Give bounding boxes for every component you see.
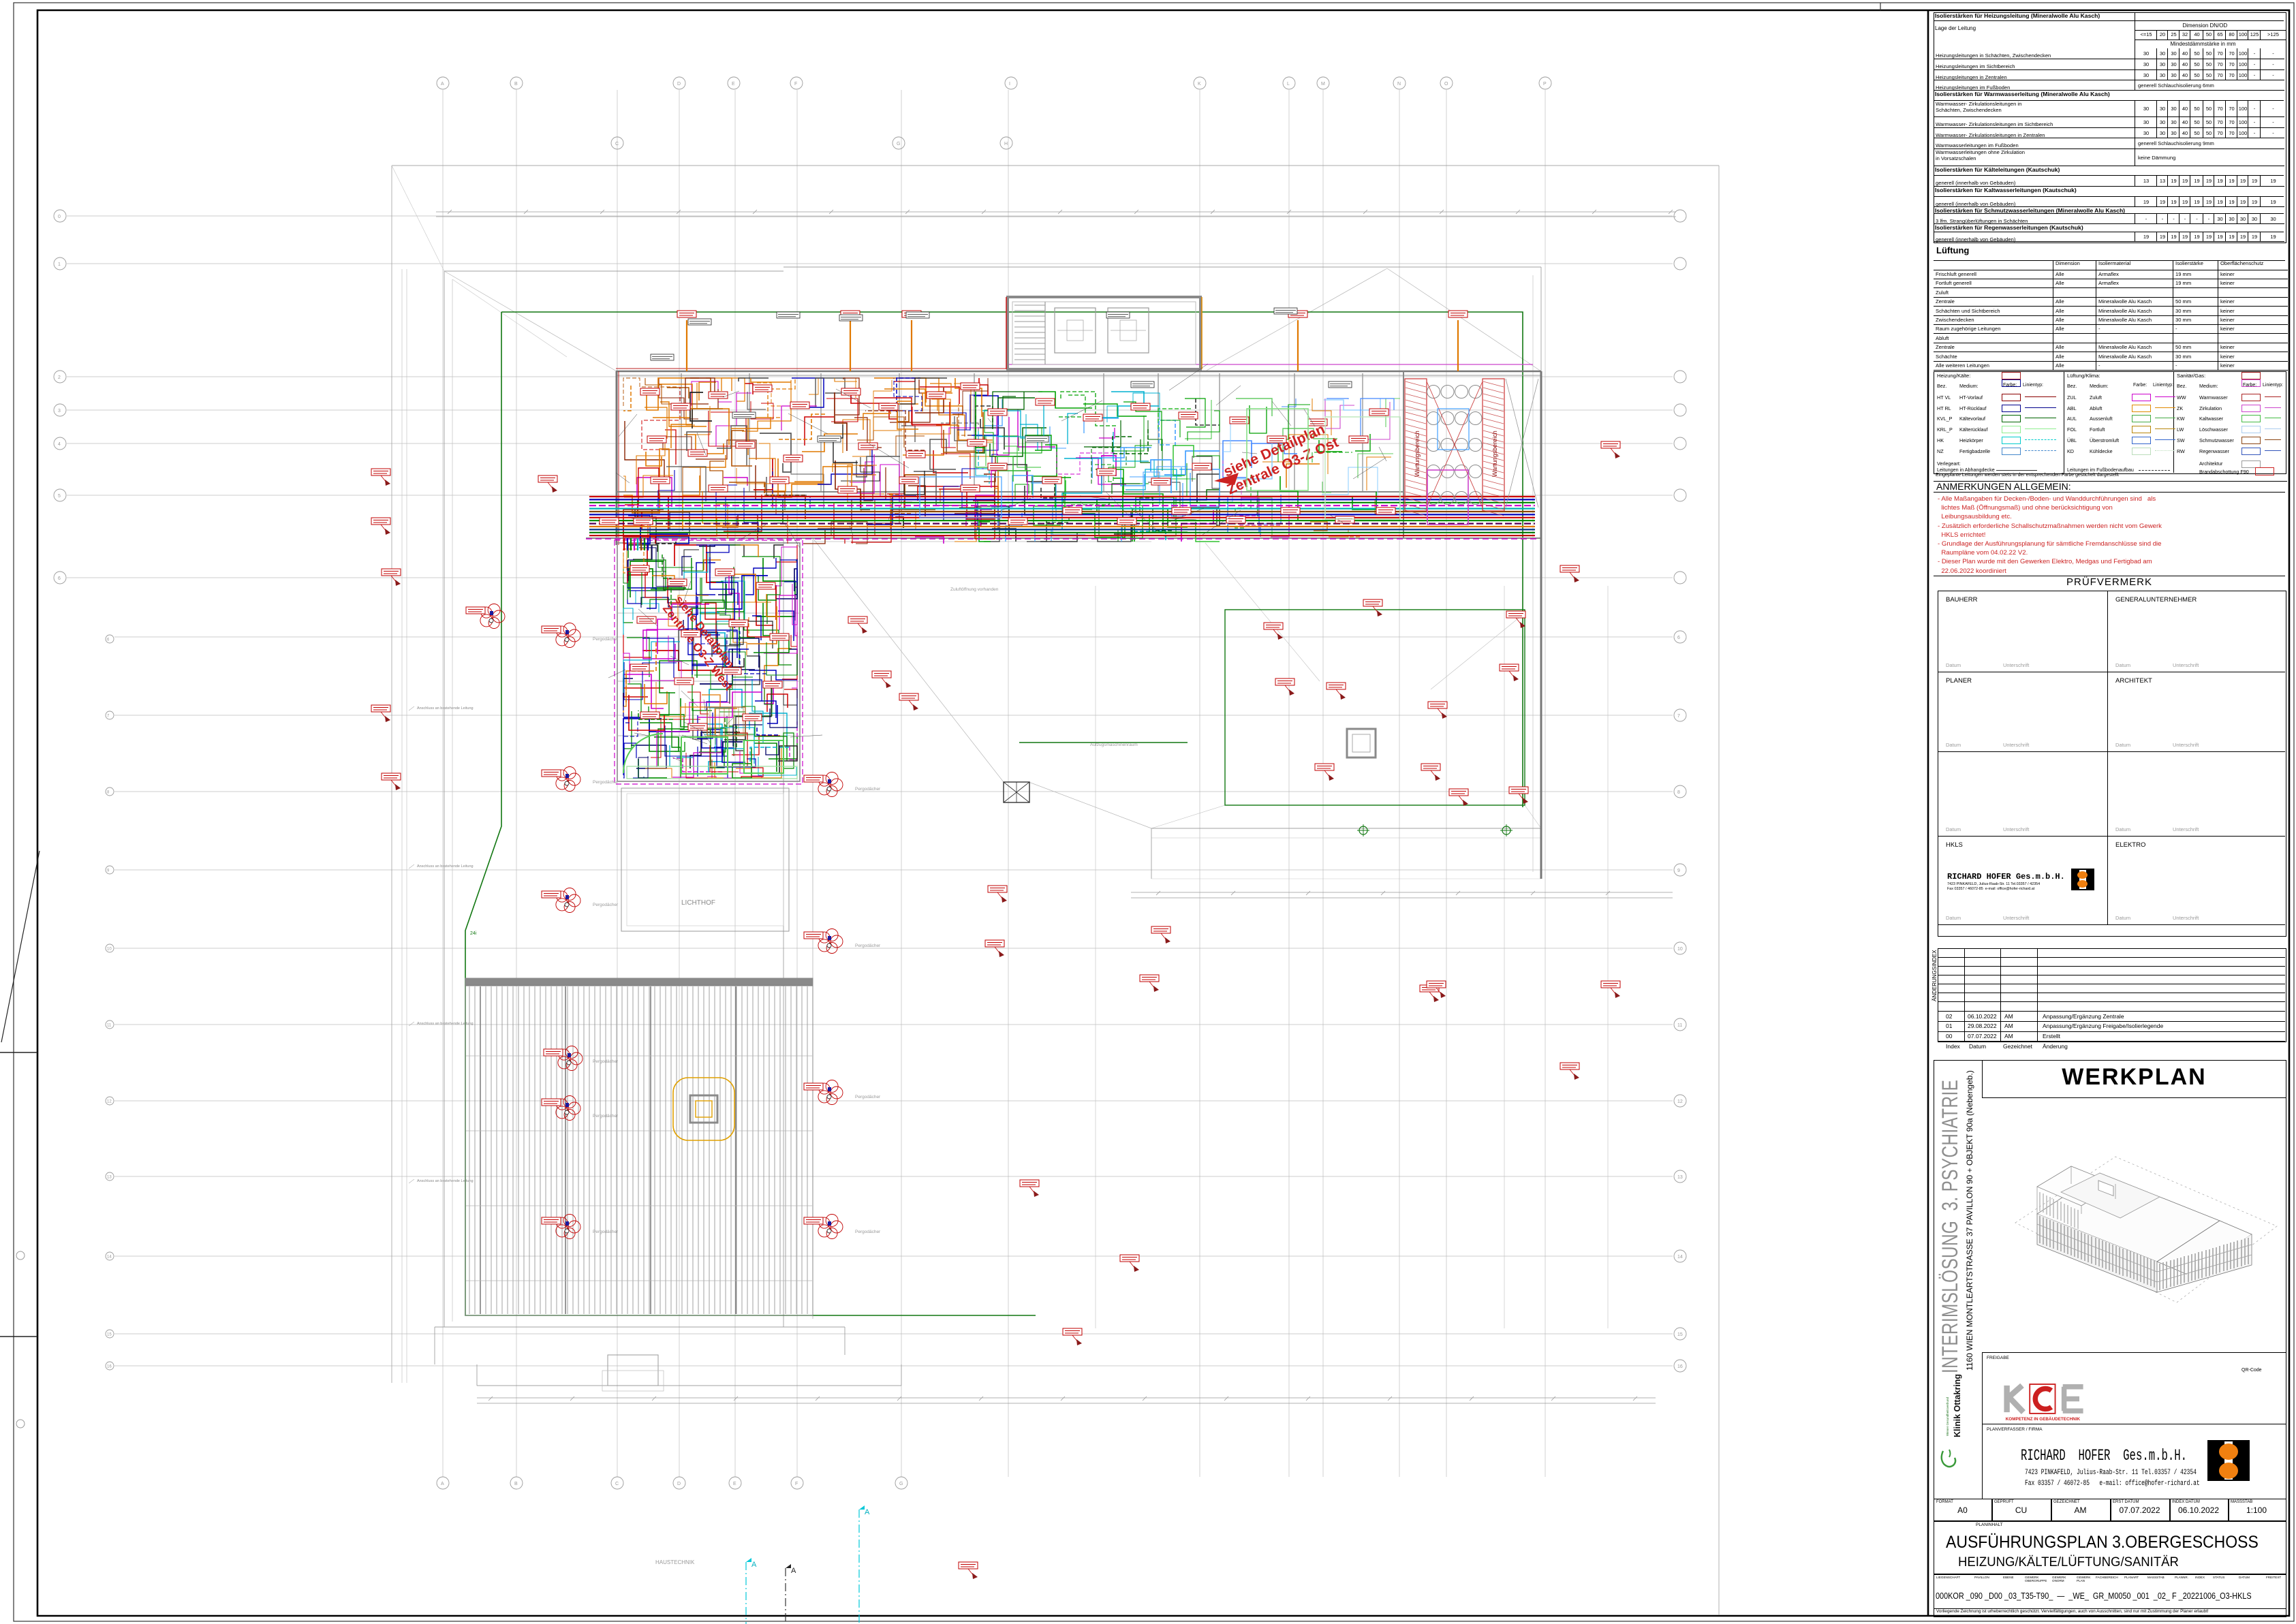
svg-text:L: L <box>1287 82 1290 87</box>
svg-text:O: O <box>1444 82 1448 87</box>
svg-text:A: A <box>441 1482 444 1486</box>
svg-text:12: 12 <box>107 1100 112 1104</box>
svg-text:11: 11 <box>1677 1023 1682 1028</box>
svg-text:1: 1 <box>58 262 61 267</box>
svg-text:M: M <box>1321 82 1325 87</box>
svg-text:E: E <box>733 1482 736 1486</box>
svg-text:I: I <box>1009 82 1010 87</box>
svg-text:Zuluftöffnung vorhanden: Zuluftöffnung vorhanden <box>950 587 999 592</box>
svg-text:D: D <box>677 1482 681 1486</box>
svg-text:KOMPETENZ IN GEBÄUDETECHNIK: KOMPETENZ IN GEBÄUDETECHNIK <box>2006 1416 2081 1422</box>
svg-text:LICHTHOF: LICHTHOF <box>681 899 715 907</box>
svg-text:5: 5 <box>58 494 61 499</box>
svg-text:A: A <box>751 1561 757 1569</box>
svg-text:Pergodächer: Pergodächer <box>593 1114 619 1119</box>
svg-text:C: C <box>615 1482 619 1486</box>
svg-text:7: 7 <box>1677 714 1680 719</box>
svg-text:Anschluss an bestehende Leitun: Anschluss an bestehende Leitung <box>417 706 474 710</box>
svg-text:Anschluss an bestehende Leitun: Anschluss an bestehende Leitung <box>417 1179 474 1183</box>
svg-text:G: G <box>899 1482 903 1486</box>
svg-text:E: E <box>732 82 735 87</box>
svg-text:7: 7 <box>107 715 110 719</box>
svg-text:A: A <box>441 82 444 87</box>
svg-text:Pergodächer: Pergodächer <box>593 780 619 785</box>
svg-text:13: 13 <box>1677 1175 1683 1180</box>
svg-text:9: 9 <box>1677 869 1680 873</box>
svg-text:H: H <box>1004 142 1008 146</box>
svg-text:Wartungsbereich: Wartungsbereich <box>1414 431 1421 477</box>
svg-text:A: A <box>791 1567 796 1575</box>
svg-text:15: 15 <box>107 1333 112 1337</box>
svg-text:6: 6 <box>107 638 110 642</box>
svg-text:Pergodächer: Pergodächer <box>855 1230 881 1234</box>
svg-text:Pergodächer: Pergodächer <box>855 943 881 948</box>
svg-text:10: 10 <box>107 948 112 952</box>
svg-text:Pergodächer: Pergodächer <box>593 903 619 907</box>
svg-text:G: G <box>897 142 900 146</box>
svg-text:6: 6 <box>1677 636 1680 640</box>
svg-text:Pergodächer: Pergodächer <box>855 1095 881 1099</box>
svg-text:Anschluss an bestehende Leitun: Anschluss an bestehende Leitung <box>417 1022 474 1026</box>
svg-text:8: 8 <box>107 791 110 795</box>
svg-text:N: N <box>1397 82 1401 87</box>
svg-text:3: 3 <box>58 409 61 413</box>
svg-text:D: D <box>677 82 681 87</box>
svg-text:Pergodächer: Pergodächer <box>593 1059 619 1064</box>
svg-text:F: F <box>794 82 797 87</box>
svg-text:0: 0 <box>58 215 61 219</box>
svg-text:11: 11 <box>107 1024 112 1028</box>
svg-text:Pergodächer: Pergodächer <box>593 637 619 642</box>
svg-text:6: 6 <box>58 576 61 581</box>
svg-text:B: B <box>514 82 518 87</box>
svg-text:8: 8 <box>1677 790 1680 795</box>
svg-text:9: 9 <box>107 869 110 873</box>
svg-text:13: 13 <box>107 1176 112 1180</box>
svg-text:Aufzugsmaschinenraum: Aufzugsmaschinenraum <box>1090 743 1138 747</box>
svg-text:Wartungsbereich: Wartungsbereich <box>1491 431 1498 477</box>
svg-text:24i: 24i <box>470 931 477 936</box>
svg-text:C: C <box>615 142 619 146</box>
svg-text:F: F <box>795 1482 798 1486</box>
svg-text:K: K <box>1198 82 1201 87</box>
svg-text:14: 14 <box>1677 1255 1683 1260</box>
svg-text:16: 16 <box>107 1365 112 1369</box>
svg-text:HAUSTECHNIK: HAUSTECHNIK <box>655 1559 695 1565</box>
svg-text:Pergodächer: Pergodächer <box>855 787 881 792</box>
svg-text:4: 4 <box>58 442 61 447</box>
svg-text:2: 2 <box>58 375 61 380</box>
svg-text:10: 10 <box>1677 947 1683 952</box>
svg-text:B: B <box>514 1482 518 1486</box>
svg-text:Anschluss an bestehende Leitun: Anschluss an bestehende Leitung <box>417 864 474 869</box>
svg-text:A: A <box>865 1508 870 1516</box>
svg-text:12: 12 <box>1677 1099 1683 1104</box>
svg-text:Pergodächer: Pergodächer <box>593 1230 619 1234</box>
svg-text:15: 15 <box>1677 1332 1683 1337</box>
svg-text:14: 14 <box>107 1255 112 1260</box>
svg-text:16: 16 <box>1677 1364 1683 1369</box>
svg-text:P: P <box>1543 82 1547 87</box>
